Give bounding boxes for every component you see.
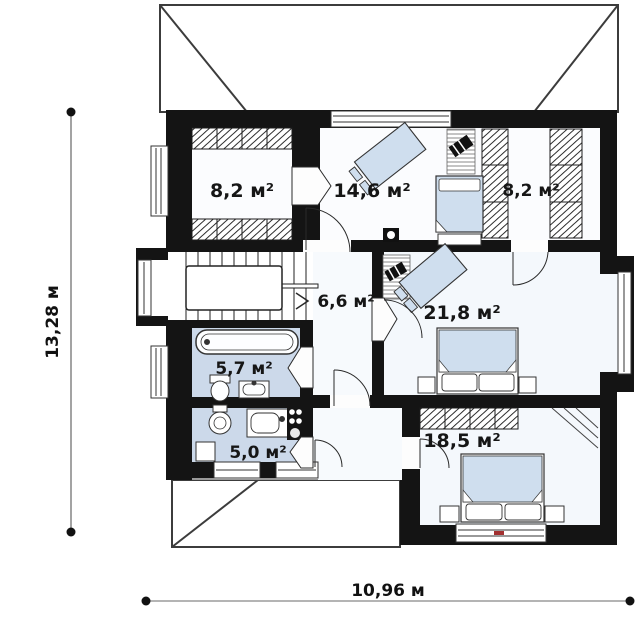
floor-plan: 8,2 м² 14,6 м² 8,2 м² 6,6 м² 21,8 м² 5,7… xyxy=(0,0,643,640)
window-right-bay xyxy=(600,272,631,374)
dimension-dot xyxy=(626,597,635,606)
dimension-dot xyxy=(142,597,151,606)
window-left-lower xyxy=(151,346,168,398)
pillow-icon xyxy=(439,179,480,191)
stair-railing xyxy=(186,266,282,310)
roof-top xyxy=(160,5,618,112)
window-sill xyxy=(192,478,318,480)
dimension-dot xyxy=(67,528,76,537)
sink-vanity-icon xyxy=(239,381,269,398)
dimension-label-width: 10,96 м xyxy=(351,581,425,601)
room-label-hall: 6,6 м² xyxy=(317,292,374,312)
room-label-bedroom-bottom: 18,5 м² xyxy=(423,430,500,452)
corridor-floor xyxy=(313,408,402,480)
heater-icon xyxy=(383,228,399,242)
pillow-icon xyxy=(442,374,477,391)
pillow-icon xyxy=(479,374,514,391)
dimension-dot xyxy=(67,108,76,117)
dimension-vertical: 13,28 м xyxy=(43,108,76,537)
room-label-kitchen: 5,0 м² xyxy=(229,443,286,463)
room-label-bedroom-top: 14,6 м² xyxy=(333,180,410,202)
nightstand-icon xyxy=(440,506,459,522)
wardrobe-left-bottom-icon xyxy=(192,219,292,240)
window-marker xyxy=(494,531,504,535)
pillow-icon xyxy=(505,504,541,520)
stove-icon xyxy=(287,406,304,440)
pillow-icon xyxy=(466,504,502,520)
room-label-bathroom: 5,7 м² xyxy=(215,359,272,379)
nightstand-icon xyxy=(519,377,536,393)
kitchen-sink-icon xyxy=(247,409,289,437)
room-label-wardrobe-left: 8,2 м² xyxy=(210,180,274,202)
window-left-bay xyxy=(138,260,168,316)
window-top xyxy=(331,111,451,127)
bed-single-icon xyxy=(436,176,483,245)
nightstand-icon xyxy=(418,377,435,393)
bed-bench xyxy=(438,234,481,245)
dimension-label-height: 13,28 м xyxy=(43,285,63,359)
window-left-upper xyxy=(151,146,168,216)
window-bottom-bedroom xyxy=(456,524,546,542)
wardrobe-bedroom-bottom-icon xyxy=(420,408,518,429)
floor-plan-svg: 8,2 м² 14,6 м² 8,2 м² 6,6 м² 21,8 м² 5,7… xyxy=(0,0,643,640)
room-label-wardrobe-right: 8,2 м² xyxy=(502,181,559,201)
rug-bedroom-top-icon xyxy=(447,129,475,174)
hall-floor xyxy=(313,252,372,395)
nightstand-icon xyxy=(545,506,564,522)
window-bottom-kitchen-1 xyxy=(214,462,260,478)
dimension-horizontal: 10,96 м xyxy=(142,581,635,606)
bathtub-icon xyxy=(196,330,298,354)
roof-bottom-left xyxy=(172,480,400,547)
wardrobe-left-top-icon xyxy=(192,128,292,149)
cabinet-icon xyxy=(196,442,215,461)
room-label-bedroom-right: 21,8 м² xyxy=(423,302,500,324)
faucet-icon xyxy=(205,340,210,345)
roof-bottom-outline xyxy=(172,480,400,547)
roof-top-outline xyxy=(160,5,618,112)
